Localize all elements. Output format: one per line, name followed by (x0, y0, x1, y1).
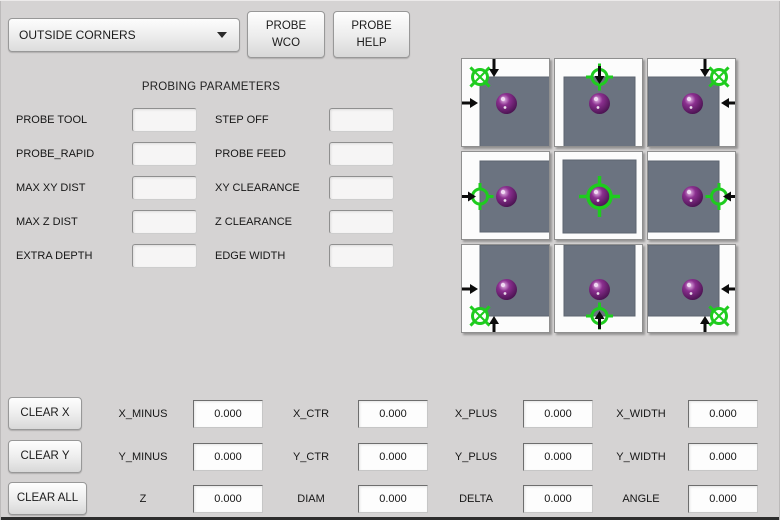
clear-all-button[interactable]: CLEAR ALL (8, 482, 87, 515)
probe-wco-button[interactable]: PROBE WCO (247, 11, 325, 58)
probe-mode-selected-value: OUTSIDE CORNERS (19, 28, 136, 42)
probe-help-label-line2: HELP (334, 35, 409, 51)
x-width-label: X_WIDTH (586, 408, 696, 420)
probe-button-top-left[interactable] (461, 58, 550, 147)
y-ctr-value: 0.000 (358, 443, 428, 471)
delta-value: 0.000 (523, 485, 593, 513)
extra-depth-label: EXTRA DEPTH (16, 250, 92, 262)
x-minus-label: X_MINUS (88, 408, 198, 420)
z-value: 0.000 (193, 485, 263, 513)
probe-button-top-right[interactable] (647, 58, 736, 147)
extra-depth-field[interactable] (132, 244, 197, 268)
probe-button-bottom-left[interactable] (461, 244, 550, 333)
angle-label: ANGLE (586, 493, 696, 505)
probe-button-bottom-right[interactable] (647, 244, 736, 333)
diam-value: 0.000 (358, 485, 428, 513)
probe-mode-select[interactable]: OUTSIDE CORNERS (8, 18, 240, 52)
workpiece-square (648, 77, 719, 146)
probe-screen-window: OUTSIDE CORNERS PROBE WCO PROBE HELP PRO… (0, 0, 780, 520)
y-plus-value: 0.000 (523, 443, 593, 471)
probe-feed-field[interactable] (329, 142, 394, 166)
z-clearance-label: Z CLEARANCE (215, 216, 292, 228)
probe-ball-icon (589, 93, 610, 114)
step-off-field[interactable] (329, 108, 394, 132)
workpiece-square (480, 245, 549, 316)
probe-wco-label-line2: WCO (248, 35, 324, 51)
x-ctr-value: 0.000 (358, 400, 428, 428)
x-plus-label: X_PLUS (421, 408, 531, 420)
arrow-left-icon (721, 284, 735, 294)
probe-button-middle-left[interactable] (461, 151, 550, 240)
arrow-down-icon (489, 59, 499, 77)
x-plus-value: 0.000 (523, 400, 593, 428)
arrow-up-icon (489, 316, 499, 332)
probe-ball-icon (496, 186, 517, 207)
crosshair-target-icon (709, 306, 728, 325)
probe-ball-icon (496, 279, 517, 300)
probe-ball-icon (496, 93, 517, 114)
y-width-value: 0.000 (688, 443, 758, 471)
z-label: Z (88, 493, 198, 505)
probe-rapid-label: PROBE_RAPID (16, 148, 94, 160)
probe-button-middle-right[interactable] (647, 151, 736, 240)
angle-value: 0.000 (688, 485, 758, 513)
probe-tool-label: PROBE TOOL (16, 114, 87, 126)
max-xy-dist-label: MAX XY DIST (16, 182, 85, 194)
probe-ball-icon (682, 93, 703, 114)
x-width-value: 0.000 (688, 400, 758, 428)
diam-label: DIAM (256, 493, 366, 505)
arrow-down-icon (700, 59, 710, 77)
probing-parameters-title: PROBING PARAMETERS (61, 81, 361, 93)
delta-label: DELTA (421, 493, 531, 505)
probe-feed-label: PROBE FEED (215, 148, 286, 160)
x-ctr-label: X_CTR (256, 408, 366, 420)
z-clearance-field[interactable] (329, 210, 394, 234)
workpiece-square (648, 245, 719, 316)
chevron-down-icon (217, 32, 227, 38)
workpiece-square (480, 77, 549, 146)
probe-rapid-field[interactable] (132, 142, 197, 166)
probe-ball-icon (682, 186, 703, 207)
edge-width-field[interactable] (329, 244, 394, 268)
probe-help-button[interactable]: PROBE HELP (333, 11, 410, 58)
y-minus-value: 0.000 (193, 443, 263, 471)
arrow-right-icon (462, 98, 478, 108)
arrow-up-icon (700, 316, 710, 332)
max-z-dist-field[interactable] (132, 210, 197, 234)
probe-button-bottom-center[interactable] (554, 244, 643, 333)
edge-width-label: EDGE WIDTH (215, 250, 285, 262)
crosshair-target-icon (470, 306, 489, 325)
step-off-label: STEP OFF (215, 114, 269, 126)
clear-y-button[interactable]: CLEAR Y (8, 440, 82, 473)
probe-tool-field[interactable] (132, 108, 197, 132)
y-ctr-label: Y_CTR (256, 451, 366, 463)
probe-button-top-center[interactable] (554, 58, 643, 147)
arrow-left-icon (721, 98, 735, 108)
max-xy-dist-field[interactable] (132, 176, 197, 200)
clear-x-button[interactable]: CLEAR X (8, 397, 82, 430)
y-width-label: Y_WIDTH (586, 451, 696, 463)
probe-help-label-line1: PROBE (334, 18, 409, 34)
y-plus-label: Y_PLUS (421, 451, 531, 463)
xy-clearance-label: XY CLEARANCE (215, 182, 300, 194)
xy-clearance-field[interactable] (329, 176, 394, 200)
y-minus-label: Y_MINUS (88, 451, 198, 463)
probe-button-center[interactable] (554, 151, 643, 240)
probe-wco-label-line1: PROBE (248, 18, 324, 34)
probe-ball-icon (682, 279, 703, 300)
arrow-right-icon (462, 284, 478, 294)
probe-ball-icon (589, 279, 610, 300)
max-z-dist-label: MAX Z DIST (16, 216, 78, 228)
x-minus-value: 0.000 (193, 400, 263, 428)
crosshair-target-icon (709, 67, 728, 86)
crosshair-target-icon (470, 67, 489, 86)
